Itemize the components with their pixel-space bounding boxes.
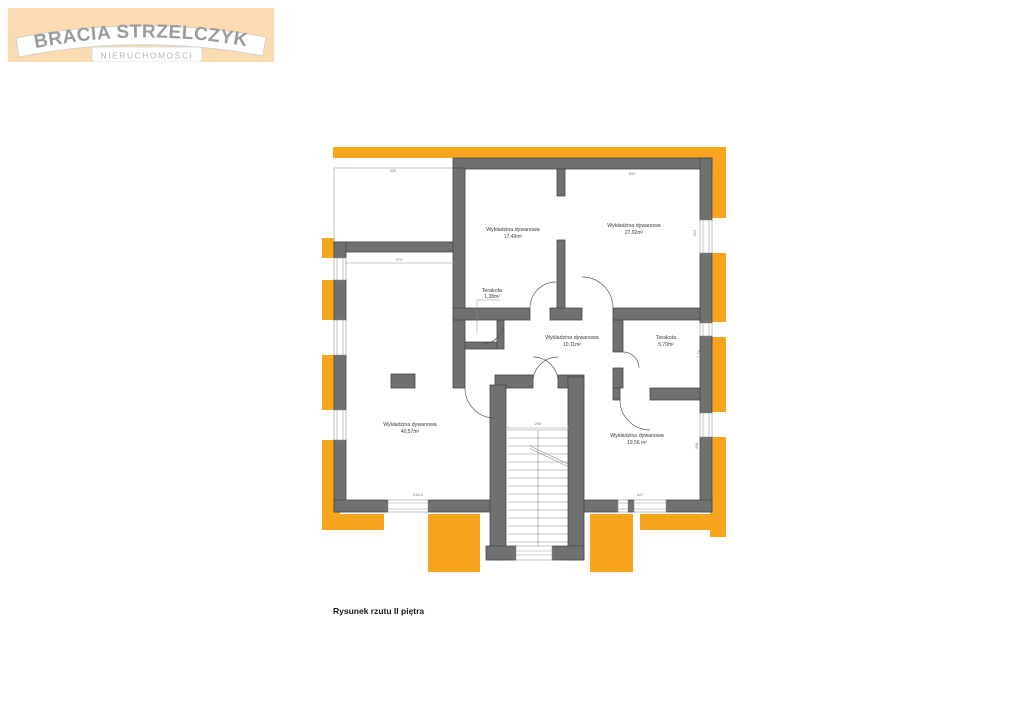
room-area-label: 27,92m² — [625, 230, 644, 236]
dimension-label: 438 — [694, 442, 699, 449]
room-area-label: 19,56 m² — [627, 440, 647, 446]
room-label: Wykładzina dywanowa — [607, 223, 661, 229]
terrace-outline — [334, 168, 453, 242]
room-labels: Wykładzina dywanowa 17,49m² Wykładzina d… — [383, 223, 676, 446]
dimension-label: 430 — [390, 168, 397, 173]
room-area-label: 17,49m² — [504, 234, 523, 240]
room-area-label: 40,57m² — [401, 429, 420, 435]
floor-plan: Wykładzina dywanowa 17,49m² Wykładzina d… — [0, 0, 1024, 724]
page: BRACIA STRZELCZYK NIERUCHOMOŚCI — [0, 0, 1024, 724]
room-label: Wykładzina dywanowa — [610, 433, 664, 439]
drawing-caption: Rysunek rzutu II piętra — [333, 606, 424, 616]
room-label: Wykładzina dywanowa — [383, 422, 437, 428]
dimension-label: 447 — [637, 492, 644, 497]
staircase — [508, 430, 568, 546]
room-label: Wykładzina dywanowa — [486, 227, 540, 233]
dimension-label: 1,74 — [696, 349, 701, 358]
room-label: Terakota — [656, 335, 676, 341]
dimension-label: 518,5 — [413, 492, 424, 497]
dimension-label: 541 — [629, 171, 636, 176]
dimension-label: 370 — [396, 257, 403, 262]
dimension-label: 298 — [535, 421, 542, 426]
room-area-label: 10,11m² — [563, 342, 581, 348]
room-label: Wykładzina dywanowa — [545, 335, 599, 341]
room-area-label: 5,70m² — [658, 342, 674, 348]
chimney-pillar — [391, 374, 415, 388]
dimension-label: 912 — [692, 229, 697, 236]
room-area-label: 1,38m² — [484, 294, 500, 300]
